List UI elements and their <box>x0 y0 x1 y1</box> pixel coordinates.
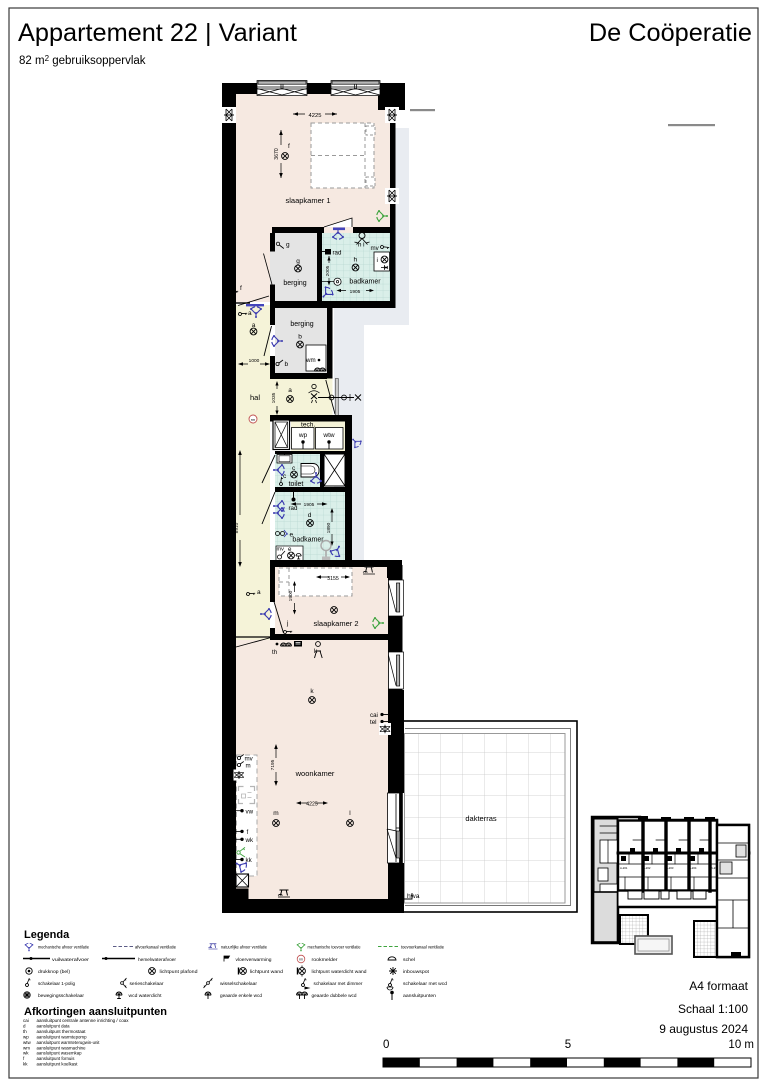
svg-text:aansluitpunt warmtepomp: aansluitpunt warmtepomp <box>37 1034 87 1039</box>
svg-text:wp: wp <box>298 432 308 439</box>
svg-text:badkamer: badkamer <box>349 279 381 286</box>
svg-text:lichtpunt waterdicht wand: lichtpunt waterdicht wand <box>312 969 367 974</box>
svg-text:hal: hal <box>250 393 260 402</box>
svg-text:tel: tel <box>370 719 377 726</box>
svg-text:4225: 4225 <box>309 113 322 119</box>
svg-text:2005: 2005 <box>325 265 331 276</box>
svg-text:1905: 1905 <box>304 502 315 508</box>
svg-text:A-202: A-202 <box>643 866 651 870</box>
svg-text:schakelaar 1-polig: schakelaar 1-polig <box>38 981 75 986</box>
svg-text:0: 0 <box>383 1039 389 1051</box>
svg-text:10 m: 10 m <box>728 1039 754 1051</box>
svg-text:woonkamer: woonkamer <box>295 769 335 778</box>
svg-text:b: b <box>298 334 302 341</box>
svg-text:82 m2 gebruiksoppervlak: 82 m2 gebruiksoppervlak <box>19 54 146 67</box>
svg-text:natuurlijke afvoer ventilatie: natuurlijke afvoer ventilatie <box>221 945 267 950</box>
svg-text:hemelwaterafvoer: hemelwaterafvoer <box>138 957 176 962</box>
svg-text:bewegingsschakelaar: bewegingsschakelaar <box>38 993 84 998</box>
svg-text:mechanische toevoer ventilatie: mechanische toevoer ventilatie <box>308 945 361 950</box>
svg-text:aansluitpunt wasmachine: aansluitpunt wasmachine <box>37 1045 86 1050</box>
svg-text:toilet: toilet <box>289 481 304 488</box>
svg-text:geaarde dubbele wcd: geaarde dubbele wcd <box>312 993 357 998</box>
svg-text:A4 formaat: A4 formaat <box>689 979 748 993</box>
svg-text:5: 5 <box>565 1039 571 1051</box>
svg-text:d: d <box>308 512 312 519</box>
svg-text:e: e <box>290 532 294 539</box>
svg-text:drukknop (bel): drukknop (bel) <box>38 969 70 974</box>
svg-text:mv: mv <box>245 756 254 763</box>
svg-text:De Coöperatie: De Coöperatie <box>589 19 752 47</box>
svg-text:hwa: hwa <box>407 893 420 900</box>
svg-text:a: a <box>248 310 252 317</box>
svg-text:b: b <box>285 361 289 368</box>
svg-text:kk: kk <box>23 1062 28 1067</box>
svg-text:slaapkamer 1: slaapkamer 1 <box>285 196 330 205</box>
svg-text:wp: wp <box>23 1034 29 1039</box>
svg-text:wisselschakelaar: wisselschakelaar <box>220 981 257 986</box>
svg-text:inbouwspot: inbouwspot <box>403 969 430 974</box>
svg-text:8910: 8910 <box>234 522 240 533</box>
svg-text:schel: schel <box>403 957 415 962</box>
svg-text:vw: vw <box>246 809 254 816</box>
svg-text:Schaal 1:100: Schaal 1:100 <box>678 1002 748 1016</box>
svg-text:badkamer: badkamer <box>292 537 324 544</box>
svg-text:rm: rm <box>299 958 303 962</box>
svg-text:g: g <box>286 242 290 249</box>
svg-text:wm: wm <box>305 357 316 364</box>
svg-text:7195: 7195 <box>270 759 276 770</box>
svg-text:1890: 1890 <box>326 522 332 533</box>
svg-text:A-204: A-204 <box>689 866 697 870</box>
svg-text:d: d <box>23 1024 26 1029</box>
svg-text:vuilwaterafvoer: vuilwaterafvoer <box>52 957 90 962</box>
svg-text:a: a <box>257 589 261 596</box>
svg-text:Appartement 22 | Variant: Appartement 22 | Variant <box>18 19 297 47</box>
svg-text:wcd waterdicht: wcd waterdicht <box>129 993 163 998</box>
svg-text:aansluitpunt centrale antenne: aansluitpunt centrale antenne inrichting… <box>37 1018 130 1023</box>
svg-text:3155: 3155 <box>327 576 339 582</box>
svg-text:1905: 1905 <box>350 289 361 295</box>
svg-text:1000: 1000 <box>249 358 260 364</box>
svg-text:aansluitpunten: aansluitpunten <box>403 993 436 998</box>
svg-text:g: g <box>296 258 300 265</box>
svg-text:vloerverwarming: vloerverwarming <box>236 957 272 962</box>
svg-text:wm: wm <box>23 1045 30 1050</box>
svg-text:a: a <box>288 387 292 394</box>
svg-text:berging: berging <box>283 280 306 287</box>
svg-text:th: th <box>23 1029 27 1034</box>
svg-text:wtw: wtw <box>23 1040 32 1045</box>
svg-text:aansluitpunt fornuis: aansluitpunt fornuis <box>37 1056 76 1061</box>
svg-text:wtw: wtw <box>322 432 335 439</box>
svg-text:mv: mv <box>371 245 380 252</box>
svg-text:A-203: A-203 <box>666 866 674 870</box>
svg-text:1900: 1900 <box>288 590 294 601</box>
svg-text:m: m <box>273 810 278 817</box>
svg-text:i: i <box>377 257 378 264</box>
svg-text:lichtpunt wand: lichtpunt wand <box>250 969 283 974</box>
svg-text:aansluitpunt thermostaat: aansluitpunt thermostaat <box>37 1029 87 1034</box>
svg-text:aansluitpunt wasemkap: aansluitpunt wasemkap <box>37 1051 82 1056</box>
svg-text:f: f <box>247 829 249 836</box>
svg-text:serieschakelaar: serieschakelaar <box>130 981 164 986</box>
svg-text:A-201: A-201 <box>620 866 628 870</box>
svg-text:cai: cai <box>23 1018 29 1023</box>
svg-text:4225: 4225 <box>306 802 318 808</box>
svg-text:th: th <box>272 649 278 656</box>
svg-text:rad: rad <box>289 505 299 512</box>
svg-text:3670: 3670 <box>274 148 280 160</box>
svg-text:mv: mv <box>277 547 285 553</box>
svg-text:mechanische afvoer ventilatie: mechanische afvoer ventilatie <box>38 945 89 950</box>
svg-text:cai: cai <box>370 712 378 719</box>
svg-text:toevoerkanaal ventilatie: toevoerkanaal ventilatie <box>401 945 444 950</box>
svg-text:dakterras: dakterras <box>465 814 497 823</box>
svg-text:rm: rm <box>251 418 255 422</box>
svg-text:berging: berging <box>290 321 313 328</box>
svg-text:rookmelder: rookmelder <box>312 957 339 962</box>
svg-text:aansluitpunt koelkast: aansluitpunt koelkast <box>37 1062 79 1067</box>
svg-text:afvoerkanaal ventilatie: afvoerkanaal ventilatie <box>135 945 176 950</box>
svg-text:schakelaar met dimmer: schakelaar met dimmer <box>314 981 363 986</box>
svg-text:9 augustus 2024: 9 augustus 2024 <box>659 1022 748 1036</box>
svg-text:wk: wk <box>23 1051 29 1056</box>
svg-text:aansluitpunt data: aansluitpunt data <box>37 1024 70 1029</box>
svg-text:j: j <box>286 620 288 627</box>
svg-text:wk: wk <box>245 837 254 844</box>
svg-text:m: m <box>246 763 251 770</box>
svg-text:f: f <box>23 1056 25 1061</box>
svg-text:Legenda: Legenda <box>24 929 70 941</box>
svg-text:f: f <box>240 285 242 292</box>
svg-text:f: f <box>288 143 290 150</box>
svg-text:lichtpunt plafond: lichtpunt plafond <box>160 969 198 974</box>
svg-text:geaarde enkele wcd: geaarde enkele wcd <box>220 993 262 998</box>
svg-text:schakelaar met wcd: schakelaar met wcd <box>403 981 447 986</box>
svg-text:h i: h i <box>358 242 365 249</box>
svg-text:Afkortingen aansluitpunten: Afkortingen aansluitpunten <box>24 1006 167 1018</box>
svg-text:aansluitpunt warmteterugwin-un: aansluitpunt warmteterugwin-unit <box>37 1040 101 1045</box>
svg-text:rad: rad <box>333 250 343 257</box>
svg-text:1035: 1035 <box>271 392 277 403</box>
svg-text:slaapkamer 2: slaapkamer 2 <box>313 619 358 628</box>
svg-text:h: h <box>354 257 358 264</box>
